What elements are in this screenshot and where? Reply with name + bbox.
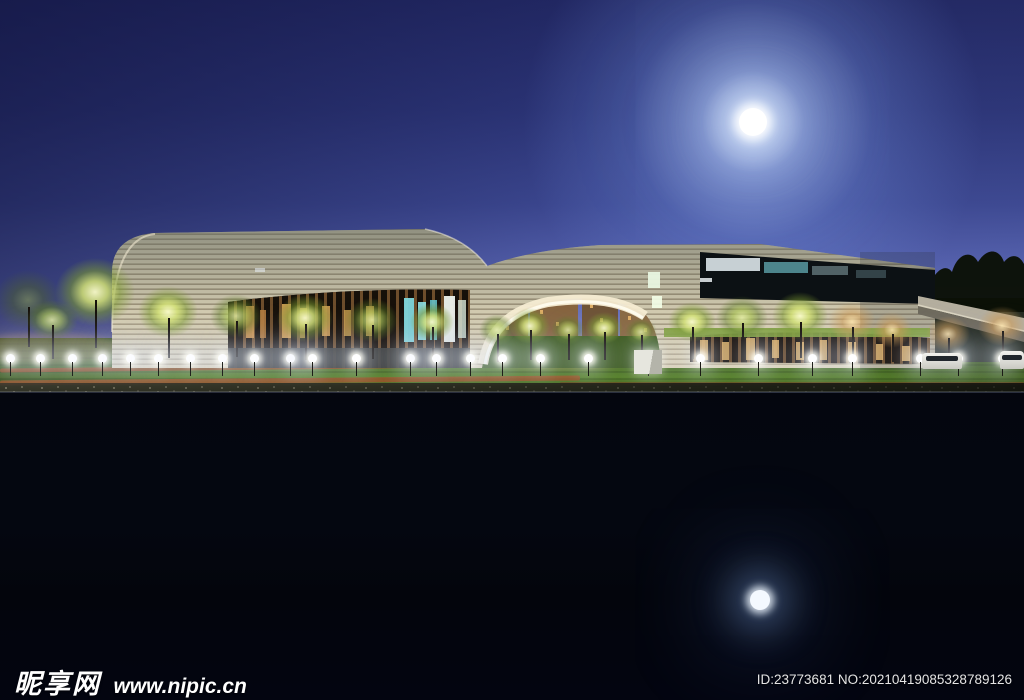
shuttle-van — [1000, 351, 1024, 369]
sphere-lamp — [250, 354, 259, 363]
sphere-lamp — [186, 354, 195, 363]
water-shade — [0, 392, 1024, 700]
night-building-photo: 昵享网 www.nipic.cn ID:23773681 NO:20210419… — [0, 0, 1024, 700]
sphere-lamp — [36, 354, 45, 363]
sphere-lamp — [126, 354, 135, 363]
waterline — [0, 391, 1024, 393]
moon-reflection — [750, 590, 770, 610]
sphere-lamp — [536, 354, 545, 363]
sphere-lamp — [68, 354, 77, 363]
watermark-site: 昵享网 www.nipic.cn — [14, 662, 247, 700]
sphere-lamp — [498, 354, 507, 363]
sphere-lamp — [696, 354, 705, 363]
shuttle-van — [922, 353, 962, 369]
sphere-lamp — [584, 354, 593, 363]
sphere-lamp — [352, 354, 361, 363]
sphere-lamp — [308, 354, 317, 363]
reflecting-pond — [0, 392, 1024, 700]
sphere-lamp — [848, 354, 857, 363]
utility-box — [634, 350, 662, 374]
sphere-lamp — [406, 354, 415, 363]
lamps-layer — [0, 0, 1024, 392]
sphere-lamp — [754, 354, 763, 363]
sphere-lamp — [808, 354, 817, 363]
sphere-lamp — [6, 354, 15, 363]
watermark-id: ID:23773681 NO:20210419085328789126 — [757, 672, 1012, 687]
sphere-lamp — [218, 354, 227, 363]
sphere-lamp — [154, 354, 163, 363]
sphere-lamp — [466, 354, 475, 363]
watermark-site-name: 昵享网 — [14, 669, 101, 699]
sphere-lamp — [286, 354, 295, 363]
watermark-site-url: www.nipic.cn — [113, 675, 246, 698]
sphere-lamp — [432, 354, 441, 363]
scene — [0, 0, 1024, 392]
sphere-lamp — [98, 354, 107, 363]
